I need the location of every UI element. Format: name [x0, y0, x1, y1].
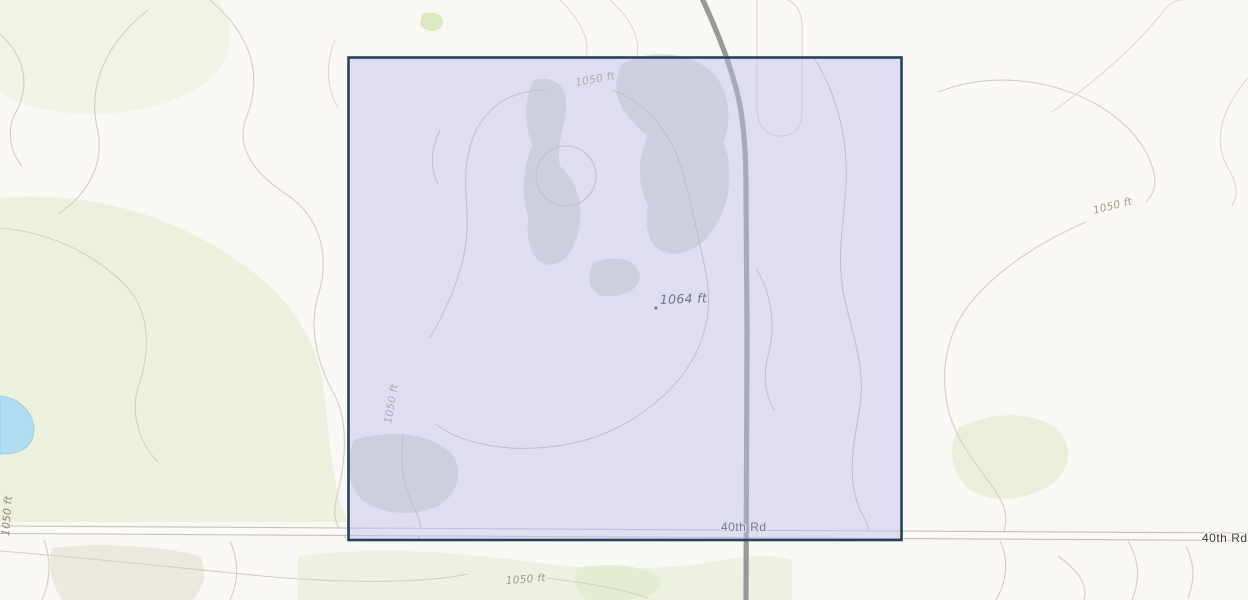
topo-basemap[interactable]: 1050 ft 1050 ft 1050 ft 1050 ft 1050 ft … — [0, 0, 1248, 600]
road-label-40th-rd-right: 40th Rd — [1202, 531, 1248, 545]
map-canvas[interactable]: 1050 ft 1050 ft 1050 ft 1050 ft 1050 ft … — [0, 0, 1248, 600]
selection-rectangle[interactable] — [349, 58, 902, 541]
ground-patch — [50, 545, 204, 600]
